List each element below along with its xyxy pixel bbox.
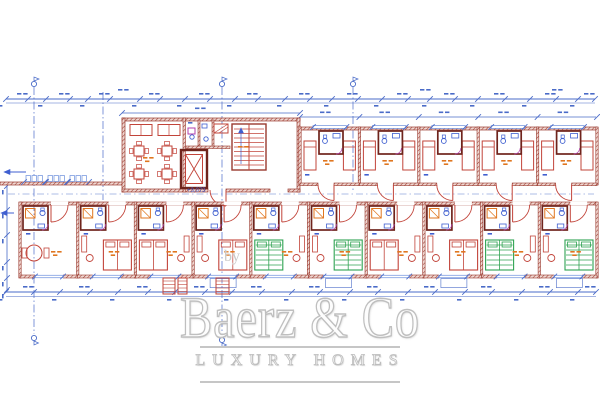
top-dimension-line [0, 89, 598, 107]
restaurant [130, 125, 181, 184]
watermark-rule-top [200, 346, 400, 348]
top-rooms-band [299, 124, 598, 200]
bottom-rooms-band [19, 202, 598, 288]
floor-plan-page: +3,073 by Baerz & Co LUXURY HOMES [0, 0, 600, 400]
wc-pods [186, 120, 230, 149]
watermark-rule-bottom [200, 381, 400, 383]
left-wing [0, 169, 123, 215]
floor-plan-drawing [0, 0, 600, 400]
level-annotation: +3,073 [187, 188, 206, 194]
bottom-dimension-line [0, 286, 599, 301]
staircase [232, 124, 266, 170]
watermark-by: by [224, 248, 240, 266]
